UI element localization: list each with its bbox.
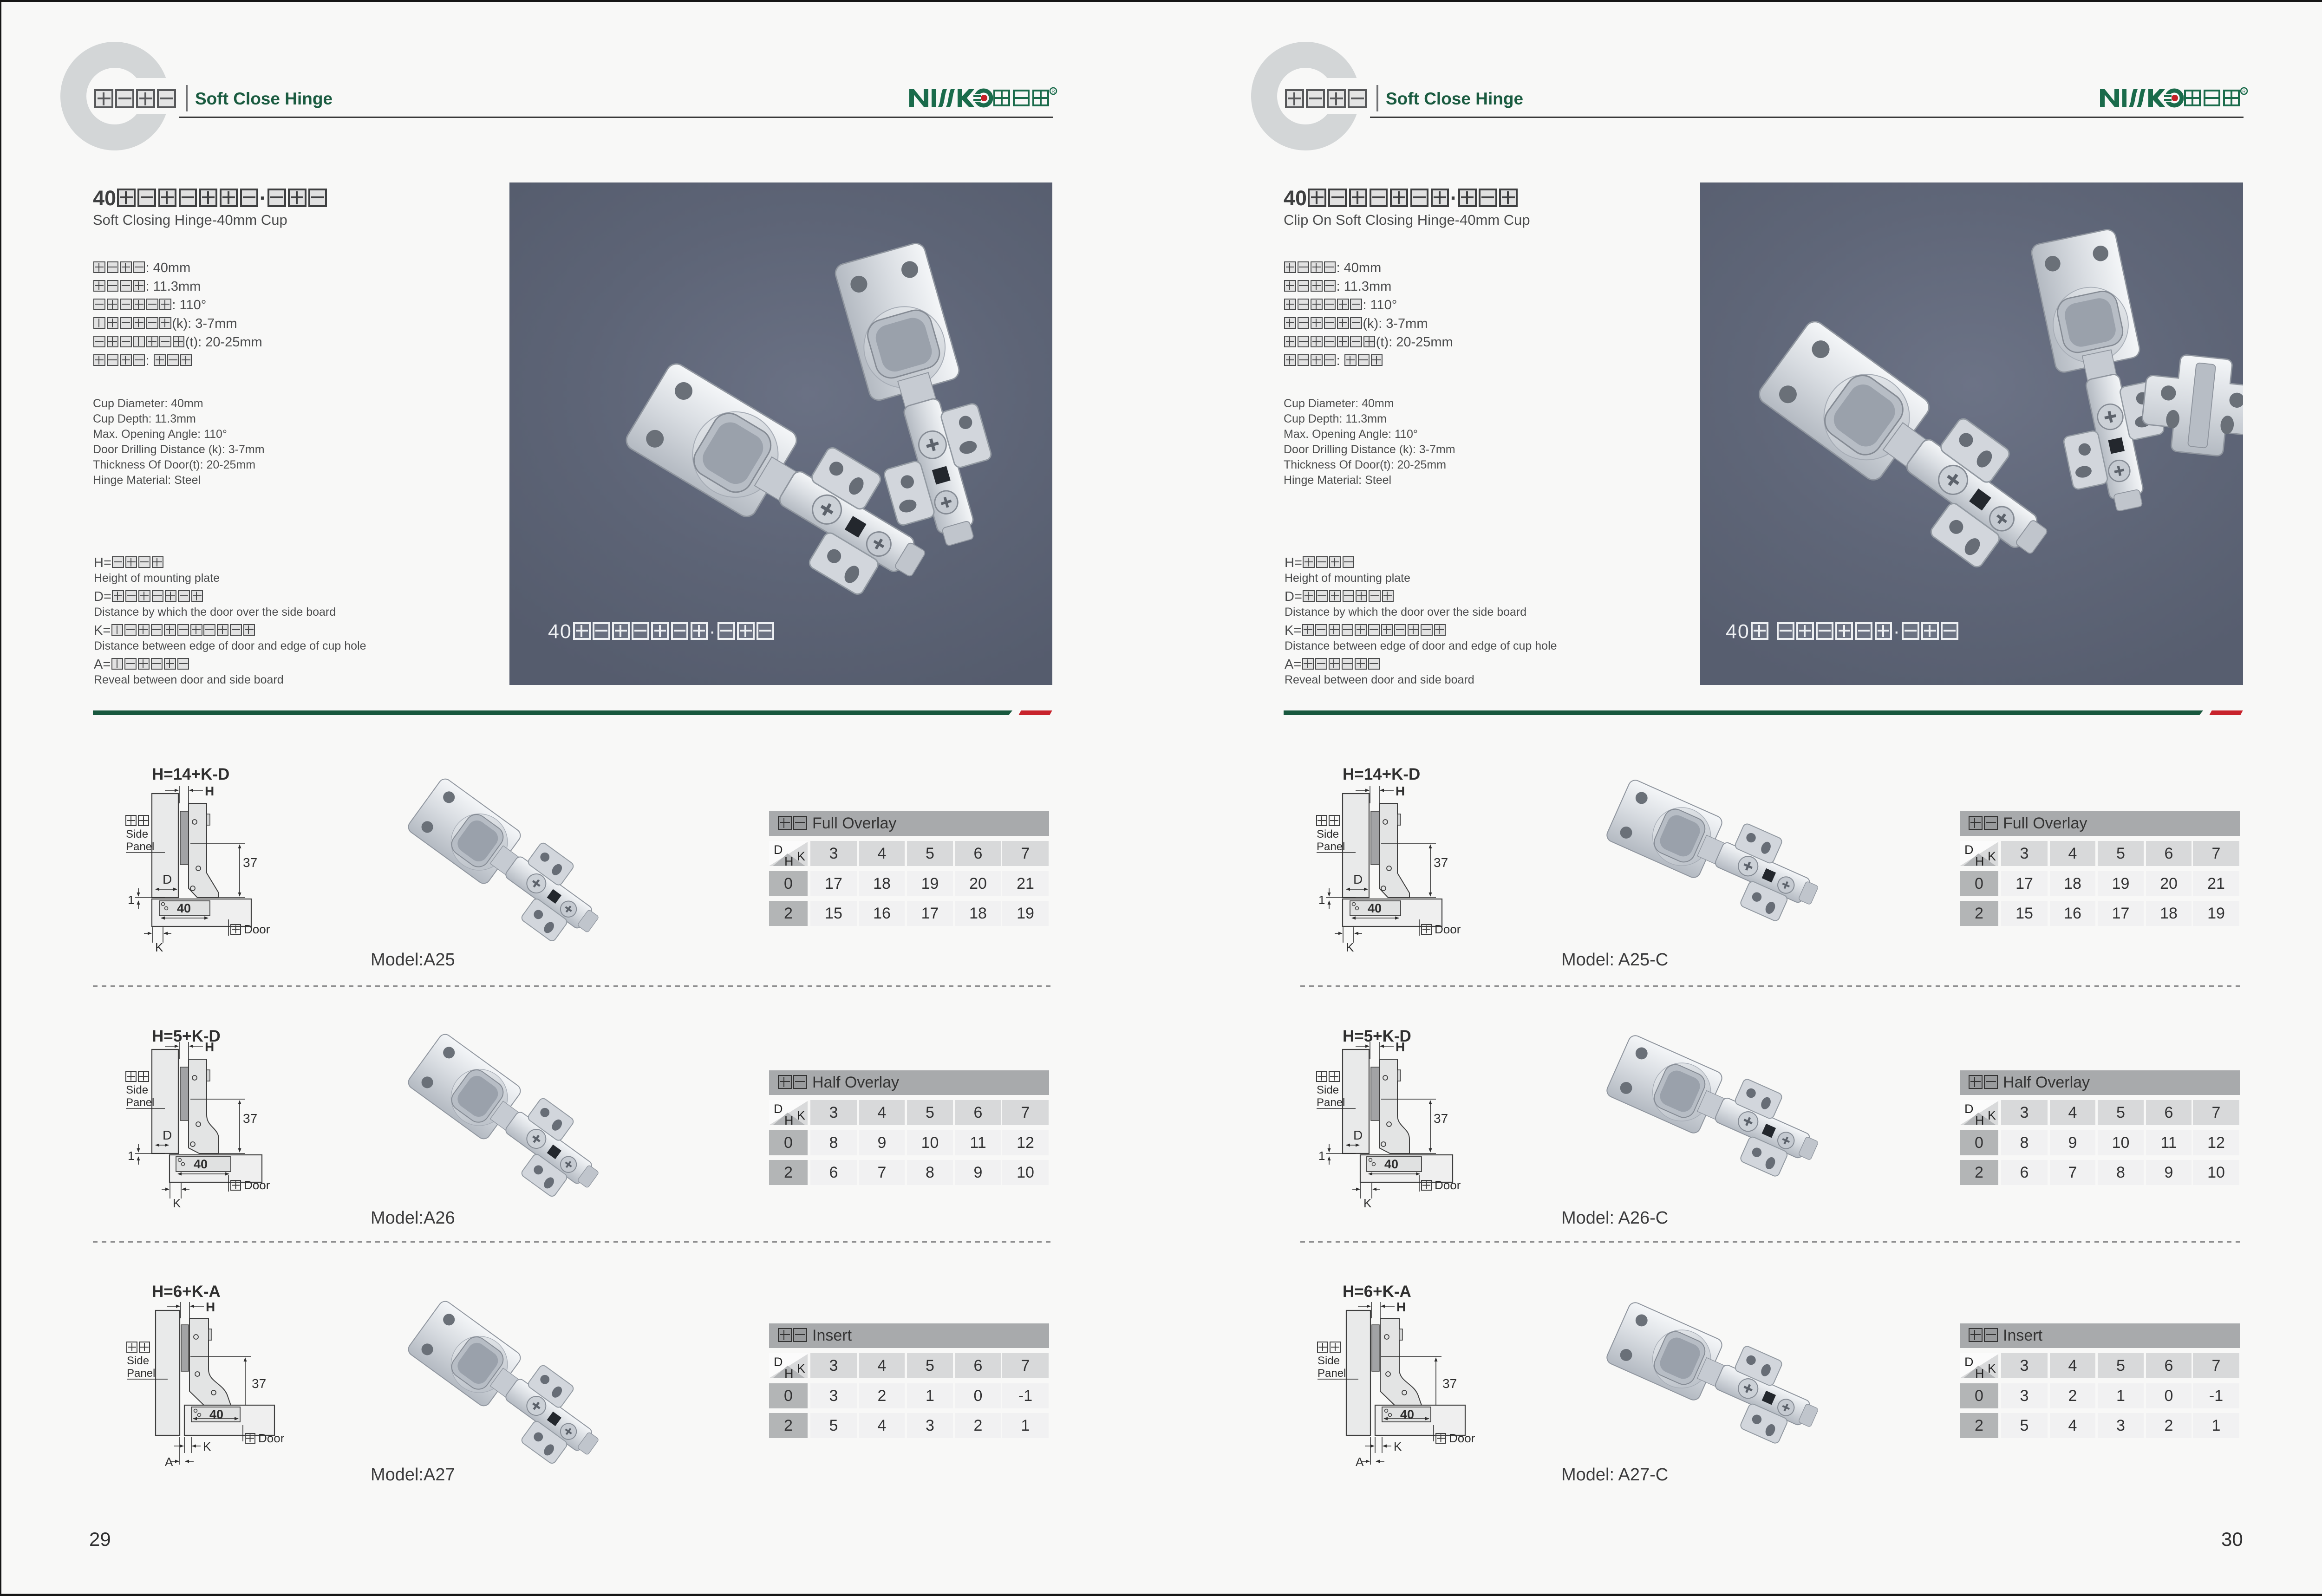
svg-text:H: H (206, 1300, 215, 1314)
svg-text:H: H (205, 784, 214, 798)
svg-text:40: 40 (209, 1407, 223, 1421)
svg-text:Panel: Panel (1317, 1096, 1345, 1109)
svg-text:H: H (784, 1367, 794, 1378)
svg-text:Side: Side (126, 1084, 148, 1096)
svg-text:40: 40 (1400, 1407, 1414, 1421)
svg-text:D: D (1964, 1102, 1974, 1116)
svg-text:H: H (784, 1114, 794, 1125)
svg-text:A: A (165, 1455, 173, 1469)
svg-text:Door: Door (1435, 922, 1461, 936)
svg-text:H: H (1396, 784, 1405, 798)
svg-text:Door: Door (1435, 1178, 1461, 1192)
svg-text:A: A (1356, 1455, 1364, 1469)
svg-text:37: 37 (1442, 1376, 1457, 1391)
svg-text:Door: Door (244, 922, 270, 936)
svg-text:D: D (1353, 1128, 1363, 1142)
svg-text:37: 37 (243, 855, 257, 870)
svg-text:Panel: Panel (126, 1096, 154, 1109)
svg-text:D: D (1964, 843, 1974, 857)
svg-text:D: D (163, 1128, 172, 1142)
svg-text:37: 37 (252, 1376, 266, 1391)
svg-text:D: D (1353, 872, 1363, 886)
svg-text:K: K (1346, 940, 1354, 954)
svg-text:K: K (1363, 1196, 1372, 1210)
svg-text:Door: Door (244, 1178, 270, 1192)
svg-text:Panel: Panel (127, 1367, 155, 1380)
svg-text:R: R (2242, 89, 2245, 94)
svg-text:D: D (774, 1102, 783, 1116)
svg-text:D: D (1964, 1355, 1974, 1369)
svg-text:37: 37 (1434, 1111, 1448, 1126)
svg-text:Door: Door (1449, 1431, 1475, 1445)
svg-text:H: H (205, 1040, 214, 1054)
svg-text:Side: Side (1318, 1355, 1340, 1367)
svg-text:K: K (797, 1361, 805, 1375)
svg-text:K: K (1988, 1361, 1996, 1375)
svg-text:K: K (1394, 1440, 1402, 1453)
svg-text:K: K (797, 1108, 805, 1122)
svg-text:Side: Side (127, 1355, 149, 1367)
svg-text:40: 40 (1368, 901, 1382, 915)
svg-text:H: H (1396, 1040, 1405, 1054)
svg-text:40: 40 (177, 901, 191, 915)
svg-text:37: 37 (1434, 855, 1448, 870)
svg-text:40: 40 (1384, 1157, 1398, 1171)
svg-text:D: D (163, 872, 172, 886)
svg-text:Side: Side (126, 828, 148, 840)
svg-text:K: K (797, 849, 805, 863)
svg-text:Panel: Panel (126, 840, 154, 853)
svg-text:Panel: Panel (1317, 840, 1345, 853)
svg-text:Side: Side (1317, 828, 1339, 840)
svg-text:1: 1 (128, 893, 134, 907)
svg-text:Panel: Panel (1318, 1367, 1346, 1380)
svg-text:D: D (774, 1355, 783, 1369)
svg-text:H: H (1975, 854, 1984, 866)
svg-text:37: 37 (243, 1111, 257, 1126)
svg-text:K: K (1988, 1108, 1996, 1122)
svg-text:K: K (1988, 849, 1996, 863)
svg-text:1: 1 (1318, 893, 1325, 907)
svg-text:K: K (155, 940, 163, 954)
svg-text:D: D (774, 843, 783, 857)
svg-text:K: K (203, 1440, 211, 1453)
svg-text:Side: Side (1317, 1084, 1339, 1096)
svg-text:H: H (1975, 1367, 1984, 1378)
svg-text:H: H (784, 854, 794, 866)
svg-text:R: R (1051, 89, 1055, 94)
svg-text:1: 1 (1318, 1149, 1325, 1163)
svg-text:K: K (173, 1196, 181, 1210)
svg-text:H: H (1975, 1114, 1984, 1125)
svg-text:H: H (1396, 1300, 1406, 1314)
svg-text:1: 1 (128, 1149, 134, 1163)
svg-text:40: 40 (194, 1157, 208, 1171)
svg-text:Door: Door (258, 1431, 285, 1445)
